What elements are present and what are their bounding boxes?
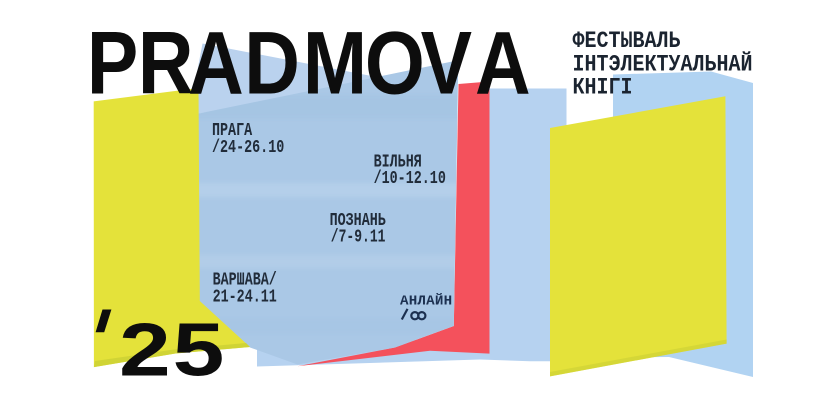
svg-text:КНІГІ: КНІГІ — [573, 75, 633, 101]
svg-text:PRADMOVA: PRADMOVA — [87, 13, 531, 112]
svg-text:/7-9.11: /7-9.11 — [331, 226, 386, 247]
svg-text:25: 25 — [119, 308, 226, 391]
svg-text:/10-12.10: /10-12.10 — [374, 168, 446, 189]
svg-text:ІНТЭЛЕКТУАЛЬНАЙ: ІНТЭЛЕКТУАЛЬНАЙ — [573, 50, 753, 78]
svg-text:ФЕСТЫВАЛЬ: ФЕСТЫВАЛЬ — [573, 29, 681, 55]
svg-text:21-24.11: 21-24.11 — [213, 286, 277, 307]
svg-text:АНЛАЙН: АНЛАЙН — [400, 292, 452, 310]
svg-text:/24-26.10: /24-26.10 — [212, 137, 284, 158]
